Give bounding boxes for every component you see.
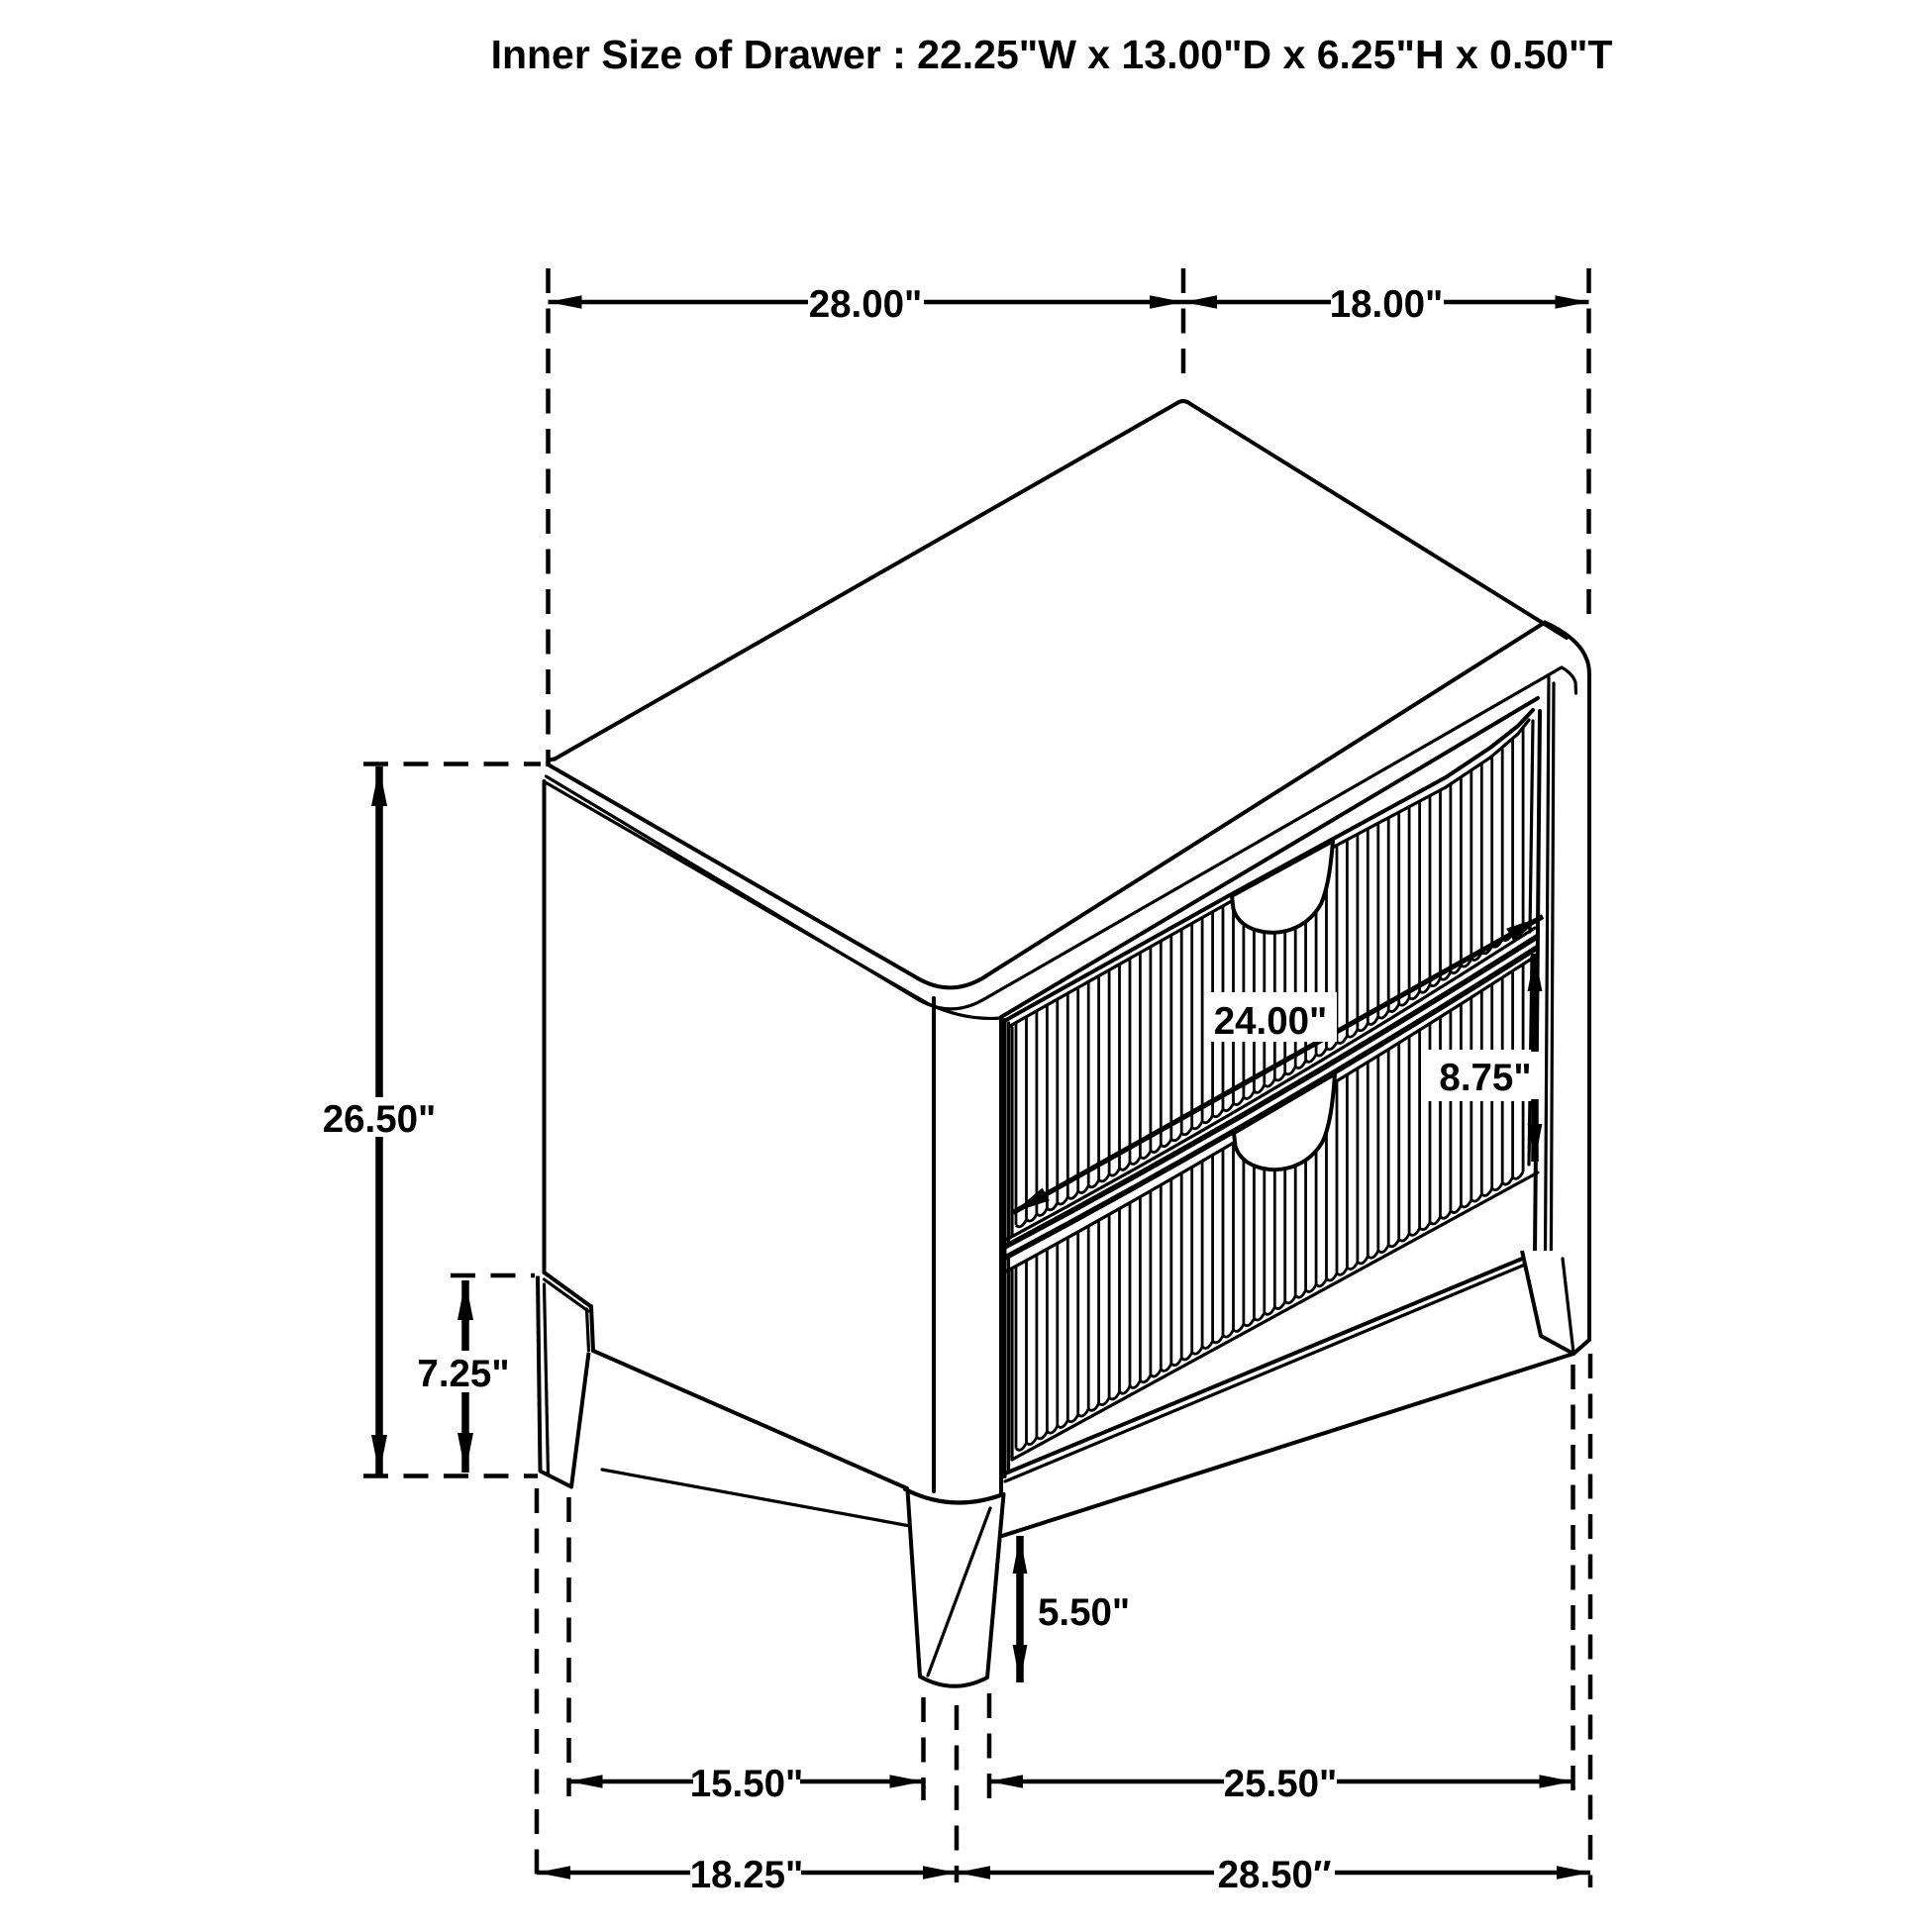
svg-text:28.00": 28.00": [809, 283, 923, 326]
svg-text:Inner Size of Drawer : 22.25"W: Inner Size of Drawer : 22.25"W x 13.00"D…: [491, 32, 1613, 77]
svg-text:28.50″: 28.50″: [1218, 1854, 1332, 1896]
svg-text:18.25": 18.25": [690, 1854, 804, 1896]
svg-text:5.50": 5.50": [1038, 1591, 1130, 1634]
svg-text:26.50": 26.50": [323, 1098, 437, 1141]
svg-text:25.50": 25.50": [1224, 1763, 1338, 1805]
svg-text:18.00": 18.00": [1330, 283, 1444, 326]
svg-text:8.75": 8.75": [1439, 1057, 1531, 1099]
svg-text:15.50": 15.50": [690, 1763, 804, 1805]
svg-text:24.00": 24.00": [1214, 1000, 1328, 1043]
svg-text:7.25": 7.25": [417, 1353, 509, 1395]
